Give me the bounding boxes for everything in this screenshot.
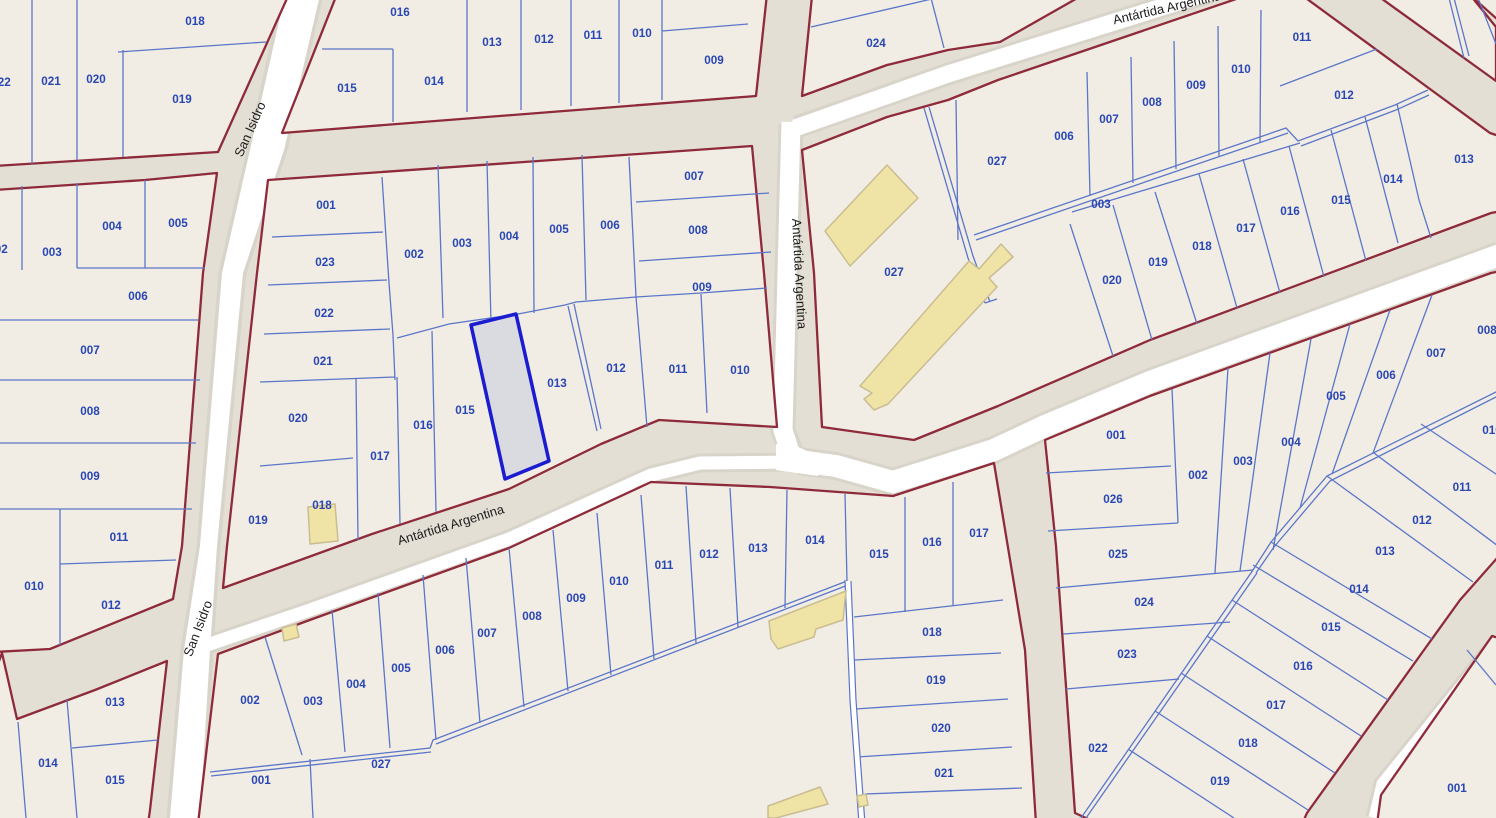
svg-text:013: 013 [1375,545,1395,558]
svg-text:026: 026 [1103,493,1123,506]
svg-text:015: 015 [455,404,475,417]
svg-text:015: 015 [1331,194,1351,207]
svg-text:016: 016 [390,6,410,19]
svg-text:010: 010 [609,575,629,588]
svg-text:002: 002 [0,243,8,256]
svg-text:001: 001 [251,774,271,787]
svg-text:007: 007 [80,344,100,357]
svg-text:017: 017 [1236,222,1256,235]
svg-text:008: 008 [688,224,708,237]
svg-text:020: 020 [931,722,951,735]
svg-text:007: 007 [477,627,497,640]
svg-text:006: 006 [600,219,620,232]
svg-text:006: 006 [435,644,455,657]
svg-text:003: 003 [42,246,62,259]
svg-text:007: 007 [1426,347,1446,360]
svg-text:023: 023 [315,256,335,269]
svg-text:008: 008 [522,610,542,623]
svg-text:011: 011 [655,559,674,572]
svg-text:008: 008 [1477,324,1496,337]
svg-text:023: 023 [1117,648,1137,661]
svg-text:018: 018 [312,499,332,512]
svg-text:019: 019 [172,93,192,106]
svg-text:012: 012 [699,548,719,561]
svg-text:003: 003 [452,237,472,250]
svg-text:021: 021 [41,75,61,88]
svg-text:001: 001 [1447,782,1467,795]
svg-text:021: 021 [313,355,333,368]
svg-text:019: 019 [926,674,946,687]
svg-text:014: 014 [424,75,444,88]
svg-text:005: 005 [1326,390,1346,403]
svg-text:010: 010 [1231,63,1251,76]
svg-text:012: 012 [606,362,626,375]
svg-text:005: 005 [168,217,188,230]
svg-text:014: 014 [805,534,825,547]
svg-text:009: 009 [1186,79,1206,92]
svg-text:013: 013 [748,542,768,555]
svg-text:012: 012 [1412,514,1432,527]
svg-text:010: 010 [632,27,652,40]
svg-text:022: 022 [0,76,11,89]
svg-text:004: 004 [346,678,366,691]
svg-text:009: 009 [704,54,724,67]
svg-text:021: 021 [934,767,954,780]
svg-text:011: 011 [1293,31,1312,44]
svg-text:016: 016 [1280,205,1300,218]
svg-text:017: 017 [370,450,390,463]
svg-text:007: 007 [1099,113,1119,126]
svg-text:008: 008 [80,405,100,418]
svg-text:005: 005 [391,662,411,675]
svg-text:001: 001 [1106,429,1126,442]
svg-text:020: 020 [288,412,308,425]
svg-text:018: 018 [1238,737,1258,750]
svg-text:014: 014 [1349,583,1369,596]
svg-text:027: 027 [987,155,1007,168]
svg-text:004: 004 [102,220,122,233]
svg-text:015: 015 [105,774,125,787]
svg-text:015: 015 [1321,621,1341,634]
svg-text:013: 013 [1454,153,1474,166]
svg-text:020: 020 [1102,274,1122,287]
svg-text:024: 024 [866,37,886,50]
svg-text:012: 012 [534,33,554,46]
svg-text:014: 014 [1383,173,1403,186]
svg-text:005: 005 [549,223,569,236]
svg-text:015: 015 [337,82,357,95]
svg-text:004: 004 [499,230,519,243]
svg-text:017: 017 [1266,699,1286,712]
svg-text:022: 022 [314,307,334,320]
svg-text:001: 001 [316,199,336,212]
svg-text:017: 017 [969,527,989,540]
svg-text:014: 014 [38,757,58,770]
svg-text:016: 016 [413,419,433,432]
svg-text:018: 018 [185,15,205,28]
svg-text:002: 002 [240,694,260,707]
svg-text:010: 010 [24,580,44,593]
svg-text:011: 011 [669,363,688,376]
svg-text:006: 006 [1376,369,1396,382]
svg-text:011: 011 [584,29,603,42]
svg-text:010: 010 [1482,424,1496,437]
svg-text:016: 016 [1293,660,1313,673]
svg-text:019: 019 [248,514,268,527]
svg-text:009: 009 [566,592,586,605]
svg-text:009: 009 [80,470,100,483]
svg-text:012: 012 [101,599,121,612]
svg-text:025: 025 [1108,548,1128,561]
svg-text:018: 018 [1192,240,1212,253]
svg-text:013: 013 [105,696,125,709]
svg-text:010: 010 [730,364,750,377]
svg-text:015: 015 [869,548,889,561]
svg-text:027: 027 [884,266,904,279]
svg-text:006: 006 [128,290,148,303]
svg-text:002: 002 [1188,469,1208,482]
svg-text:011: 011 [110,531,129,544]
svg-text:013: 013 [482,36,502,49]
svg-text:007: 007 [684,170,704,183]
svg-text:024: 024 [1134,596,1154,609]
svg-text:019: 019 [1210,775,1230,788]
svg-text:011: 011 [1453,481,1472,494]
svg-text:020: 020 [86,73,106,86]
svg-text:013: 013 [547,377,567,390]
svg-text:022: 022 [1088,742,1108,755]
svg-text:009: 009 [692,281,712,294]
svg-text:002: 002 [404,248,424,261]
svg-text:004: 004 [1281,436,1301,449]
svg-text:008: 008 [1142,96,1162,109]
svg-text:018: 018 [922,626,942,639]
svg-text:003: 003 [1233,455,1253,468]
svg-text:006: 006 [1054,130,1074,143]
svg-text:027: 027 [371,758,391,771]
svg-text:003: 003 [1091,198,1111,211]
svg-text:012: 012 [1334,89,1354,102]
svg-text:019: 019 [1148,256,1168,269]
svg-text:003: 003 [303,695,323,708]
svg-text:016: 016 [922,536,942,549]
